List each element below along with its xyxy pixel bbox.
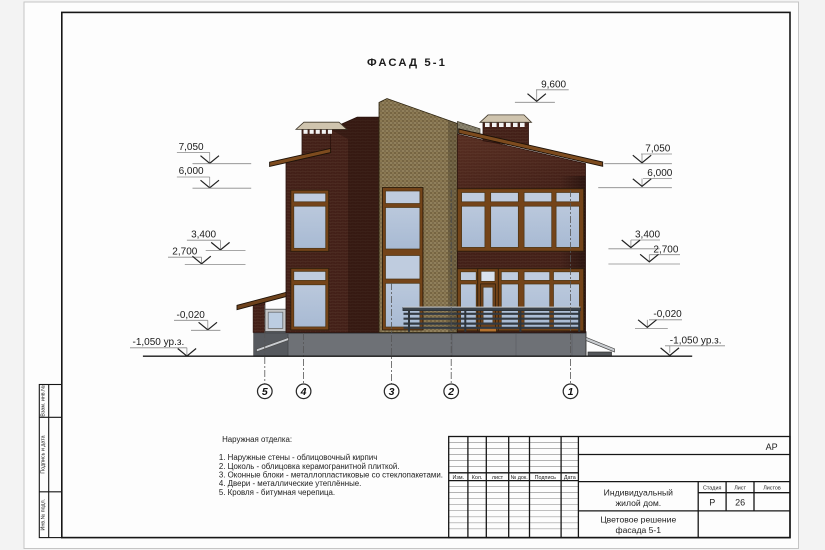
svg-text:ФАСАД 5-1: ФАСАД 5-1 (367, 57, 447, 69)
svg-text:лист: лист (492, 475, 504, 481)
svg-text:6,000: 6,000 (179, 166, 204, 177)
svg-text:2,700: 2,700 (172, 247, 197, 258)
svg-text:3: 3 (389, 386, 395, 398)
svg-text:Подпись: Подпись (535, 475, 557, 481)
svg-text:фасада 5-1: фасада 5-1 (616, 525, 662, 535)
svg-text:5: 5 (262, 386, 268, 398)
svg-text:№ док.: № док. (510, 475, 527, 481)
svg-text:1: 1 (568, 386, 574, 398)
svg-text:3,400: 3,400 (635, 230, 660, 241)
svg-text:26: 26 (735, 497, 745, 507)
svg-text:Цветовое решение: Цветовое решение (600, 515, 676, 525)
svg-text:Листов: Листов (763, 485, 781, 491)
svg-text:4. Двери - металлические уте: 4. Двери - металлические утеплённые. (219, 479, 361, 488)
svg-text:2,700: 2,700 (653, 244, 678, 255)
svg-text:АР: АР (766, 442, 778, 452)
svg-text:1. Наружные стены - облицовоч: 1. Наружные стены - облицовочный кирпич (219, 453, 377, 462)
svg-text:Наружная отделка:: Наружная отделка: (222, 435, 292, 444)
svg-text:3,400: 3,400 (191, 230, 216, 241)
svg-text:-0,020: -0,020 (653, 309, 682, 320)
svg-text:Изм.: Изм. (453, 475, 465, 481)
svg-text:Инв.№ подл.: Инв.№ подл. (41, 499, 47, 531)
svg-text:Подпись и дата: Подпись и дата (41, 435, 47, 473)
svg-text:2. Цоколь - облицовка керамог: 2. Цоколь - облицовка керамогранитной пл… (219, 462, 400, 471)
svg-text:Р: Р (709, 497, 715, 507)
svg-text:-1,050 ур.з.: -1,050 ур.з. (670, 335, 722, 346)
svg-text:-1,050 ур.з.: -1,050 ур.з. (133, 337, 185, 348)
svg-text:Стадия: Стадия (703, 485, 721, 491)
svg-text:5. Кровля - битумная черепица: 5. Кровля - битумная черепица. (219, 488, 335, 497)
svg-text:6,000: 6,000 (647, 168, 672, 179)
svg-text:7,050: 7,050 (645, 144, 670, 155)
svg-text:Дата: Дата (564, 475, 576, 481)
svg-text:4: 4 (300, 386, 307, 398)
svg-text:2: 2 (447, 386, 454, 398)
svg-text:Взам. инв.№: Взам. инв.№ (41, 385, 47, 417)
svg-text:9,600: 9,600 (541, 80, 566, 91)
svg-text:Кол.: Кол. (472, 475, 483, 481)
svg-text:жилой дом.: жилой дом. (615, 498, 661, 508)
svg-text:-0,020: -0,020 (177, 310, 206, 321)
svg-text:Лист: Лист (734, 485, 746, 491)
svg-text:7,050: 7,050 (179, 142, 204, 153)
svg-text:Индивидуальный: Индивидуальный (604, 487, 674, 497)
